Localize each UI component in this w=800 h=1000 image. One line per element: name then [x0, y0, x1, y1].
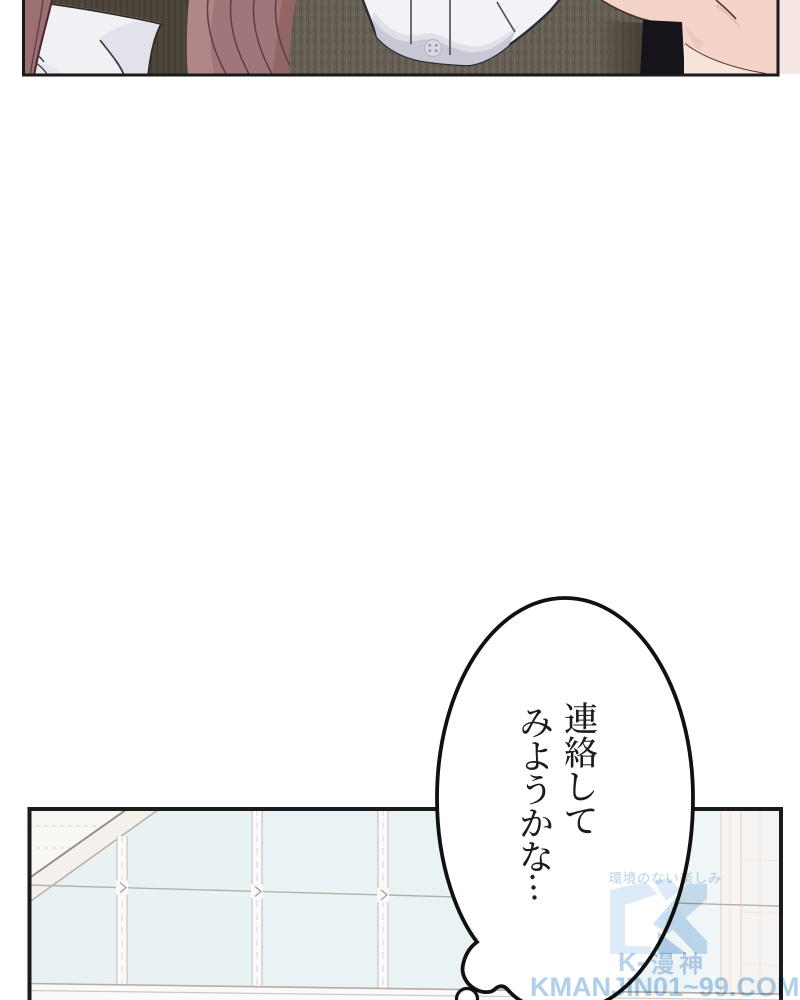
- svg-text:KMANJIN01~99.COM: KMANJIN01~99.COM: [530, 972, 799, 1000]
